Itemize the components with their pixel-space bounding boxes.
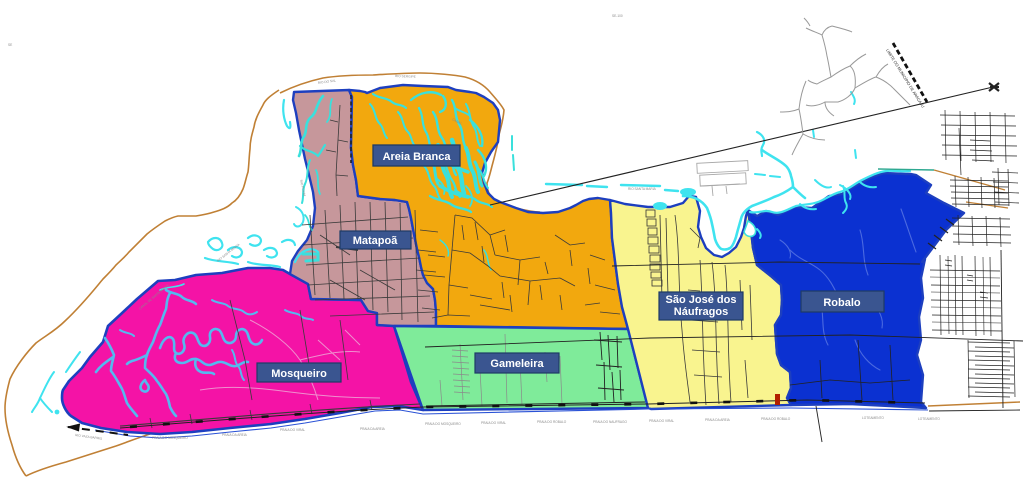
svg-text:PRAIA DA AREIA: PRAIA DA AREIA [360,427,386,431]
svg-text:LOTEAMENTO: LOTEAMENTO [862,416,884,420]
svg-text:PRAIA DO ROBALO: PRAIA DO ROBALO [761,417,791,421]
svg-text:PRAIA DO MOSQUEIRO: PRAIA DO MOSQUEIRO [425,422,461,426]
svg-text:Gameleira: Gameleira [490,358,544,370]
svg-text:SE-100: SE-100 [612,14,623,18]
svg-text:LOTEAMENTO: LOTEAMENTO [918,417,940,421]
svg-text:PRAIA DA AREIA: PRAIA DA AREIA [705,418,731,422]
svg-text:São José dos: São José dos [666,294,737,306]
svg-text:RIO SANTA MARIA: RIO SANTA MARIA [628,187,657,191]
svg-text:PRAIA DO MOSQUEIRO: PRAIA DO MOSQUEIRO [152,436,188,440]
svg-text:PRAIA DO NAUFRAGO: PRAIA DO NAUFRAGO [593,420,628,424]
svg-text:PRAIA DO VIRAL: PRAIA DO VIRAL [649,419,674,423]
svg-text:Náufragos: Náufragos [674,306,728,318]
svg-text:Robalo: Robalo [823,297,861,309]
svg-text:Mosqueiro: Mosqueiro [271,368,327,380]
svg-text:Matapoã: Matapoã [353,235,399,247]
svg-text:PRAIA DO ROBALO: PRAIA DO ROBALO [537,420,567,424]
svg-text:PRAIA DO VIRAL: PRAIA DO VIRAL [481,421,506,425]
svg-text:RIO SERGIPE: RIO SERGIPE [395,74,416,79]
svg-text:PRAIA DO VIRAL: PRAIA DO VIRAL [280,428,305,432]
svg-text:SE: SE [8,43,12,47]
svg-text:PRAIA DA AREIA: PRAIA DA AREIA [222,433,248,437]
svg-text:Areia Branca: Areia Branca [383,151,452,163]
